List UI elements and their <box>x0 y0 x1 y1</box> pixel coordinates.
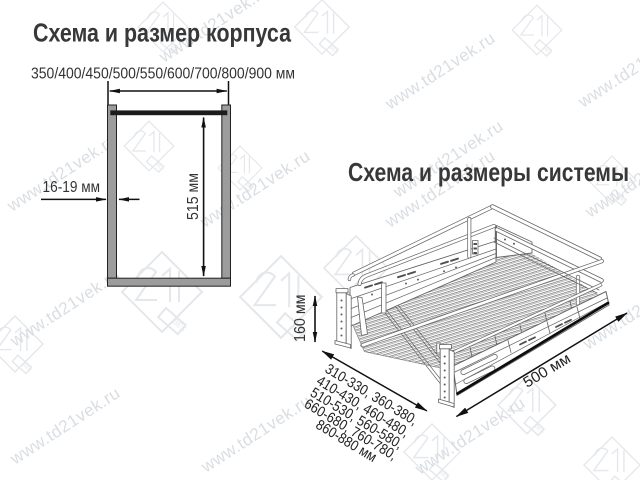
svg-text:Схема и размеры системы: Схема и размеры системы <box>348 157 629 187</box>
svg-text:160 мм: 160 мм <box>292 295 309 343</box>
svg-text:Схема и размер корпуса: Схема и размер корпуса <box>33 18 291 48</box>
svg-text:350/400/450/500/550/600/700/80: 350/400/450/500/550/600/700/800/900 мм <box>31 66 295 83</box>
svg-text:16-19 мм: 16-19 мм <box>43 179 101 196</box>
svg-text:515 мм: 515 мм <box>185 173 202 220</box>
